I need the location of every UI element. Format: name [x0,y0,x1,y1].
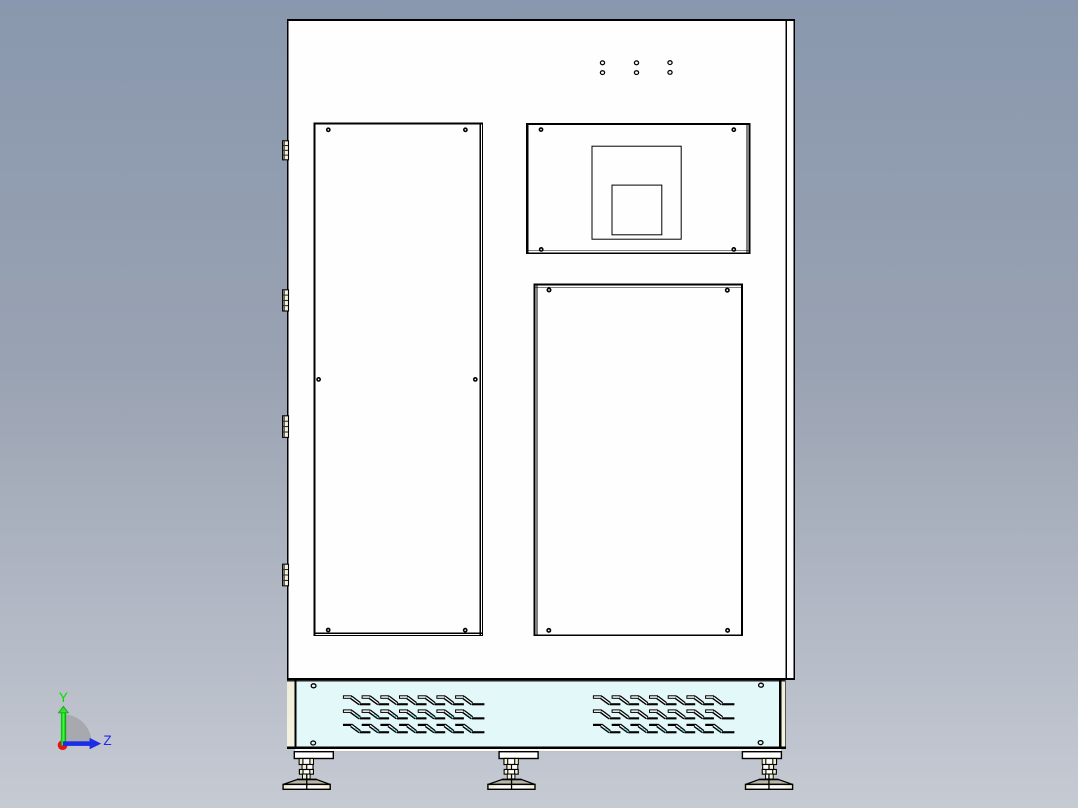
svg-text:Y: Y [59,690,68,705]
svg-text:Z: Z [103,733,111,748]
